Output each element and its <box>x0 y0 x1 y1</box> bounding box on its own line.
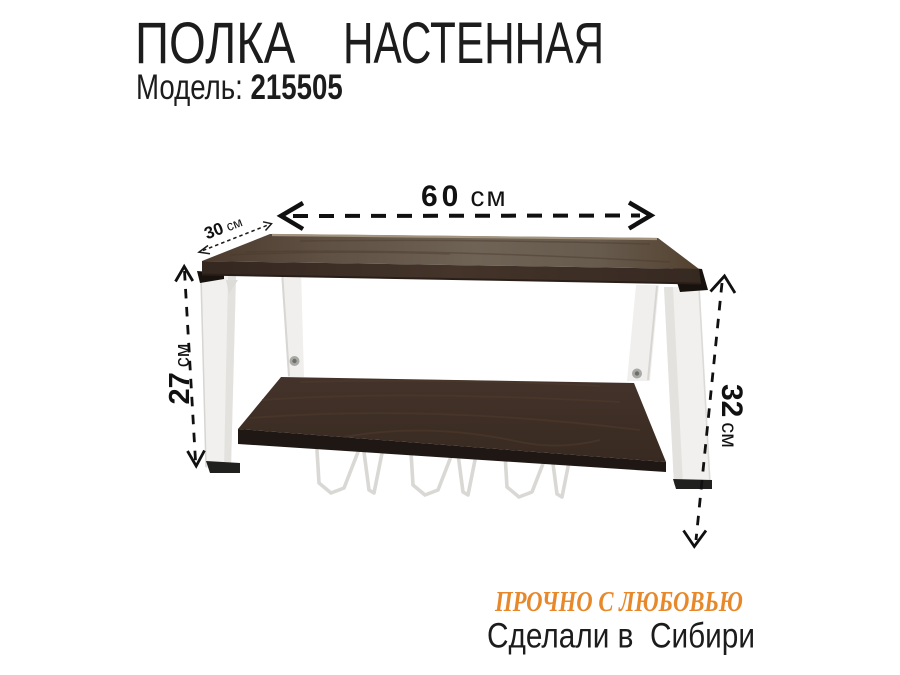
svg-text:НАСТЕННАЯ: НАСТЕННАЯ <box>343 10 604 75</box>
svg-text:Модель: 215505: Модель: 215505 <box>136 67 343 107</box>
svg-text:Сделали в Сибири: Сделали в Сибири <box>487 616 755 655</box>
svg-text:ПРОЧНО С ЛЮБОВЬЮ: ПРОЧНО С ЛЮБОВЬЮ <box>494 585 743 617</box>
